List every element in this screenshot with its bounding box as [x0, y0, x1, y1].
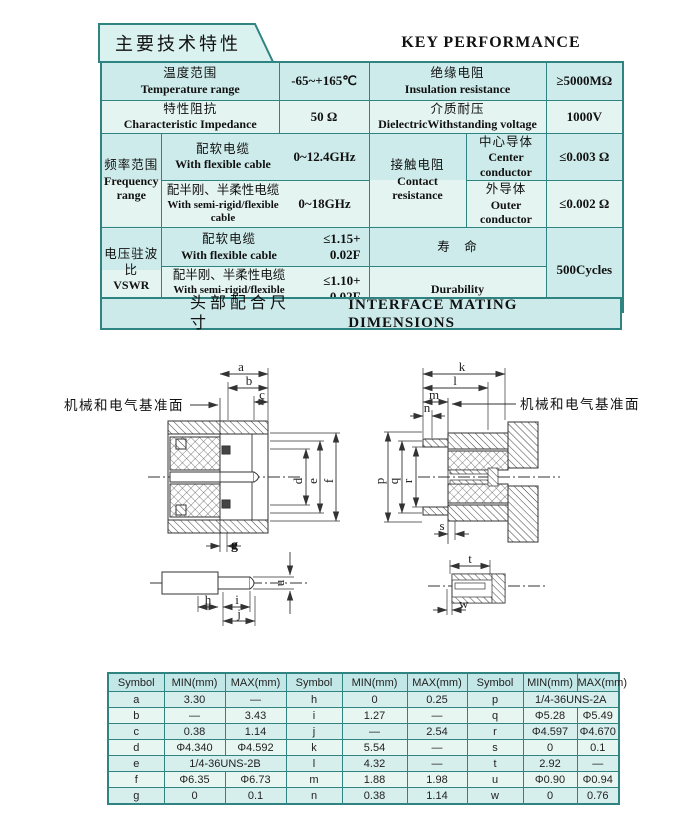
dim-label-j: j [236, 606, 241, 621]
dim-cell: 0 [342, 692, 407, 708]
impedance-en: Characteristic Impedance [104, 117, 277, 131]
dim-cell: 0 [523, 788, 577, 805]
temperature-en: Temperature range [104, 82, 277, 96]
vswr-semirigid-value-line1: ≤1.10+ [295, 273, 361, 289]
dim-label-r: r [400, 478, 415, 483]
dim-label-f: f [321, 478, 336, 483]
dim-cell: l [286, 756, 342, 772]
dim-cell: Φ0.94 [577, 772, 619, 788]
dim-cell: 0.25 [407, 692, 467, 708]
vswr-flexible-value-line2: 0.02F [295, 247, 361, 263]
dim-cell: Φ4.592 [225, 740, 286, 756]
dim-cell: n [286, 788, 342, 805]
dim-cell: k [286, 740, 342, 756]
ref-plane-label-left: 机械和电气基准面 [64, 397, 184, 413]
dim-cell: 0.1 [577, 740, 619, 756]
dim-table-header: MAX(mm) [225, 673, 286, 692]
center-conductor-en: Center conductor [469, 150, 544, 179]
dim-label-i: i [235, 592, 239, 607]
dim-label-c: c [259, 387, 265, 402]
dim-cell: 5.54 [342, 740, 407, 756]
dim-cell: 4.32 [342, 756, 407, 772]
dim-cell: w [467, 788, 523, 805]
dim-cell: Φ4.340 [164, 740, 225, 756]
key-performance-table: 温度范围 Temperature range -65~+165℃ 绝缘电阻 In… [100, 61, 624, 313]
dim-cell: 0 [164, 788, 225, 805]
dim-cell: Φ5.49 [577, 708, 619, 724]
dim-cell: 1.88 [342, 772, 407, 788]
temperature-value-cell: -65~+165℃ [279, 62, 369, 100]
frequency-label-cell: 频率范围 Frequency range [101, 133, 161, 228]
dim-cell: g [108, 788, 164, 805]
withstanding-en: DielectricWithstanding voltage [372, 117, 544, 131]
dim-cell: — [407, 708, 467, 724]
dim-cell: Φ5.28 [523, 708, 577, 724]
plug-drawing [148, 368, 340, 552]
insulation-cn: 绝缘电阻 [372, 66, 544, 82]
dim-cell: 3.30 [164, 692, 225, 708]
interface-drawings: 机械和电气基准面 a b c d e f g [52, 350, 652, 655]
vswr-semirigid-cn: 配半刚、半柔性电缆 [164, 268, 295, 284]
dim-table-row-g: g 0 0.1 n 0.38 1.14 w 0 0.76 [108, 788, 619, 805]
dim-table-header-row: Symbol MIN(mm) MAX(mm) Symbol MIN(mm) MA… [108, 673, 619, 692]
dim-cell: p [467, 692, 523, 708]
freq-semirigid-cn: 配半刚、半柔性电缆 [164, 183, 283, 199]
dim-table-row-c: c 0.38 1.14 j — 2.54 r Φ4.597 Φ4.670 [108, 724, 619, 740]
freq-semirigid-value: 0~18GHz [283, 196, 367, 212]
outer-conductor-value-cell: ≤0.002 Ω [546, 180, 623, 227]
dim-label-m: m [429, 387, 439, 402]
vswr-flexible-value-line1: ≤1.15+ [295, 231, 361, 247]
dim-cell: Φ0.90 [523, 772, 577, 788]
dim-label-g: g [231, 538, 238, 553]
frequency-en: Frequency range [104, 174, 159, 203]
dim-table-row-b: b — 3.43 i 1.27 — q Φ5.28 Φ5.49 [108, 708, 619, 724]
dim-cell: Φ4.670 [577, 724, 619, 740]
dim-cell: 1.27 [342, 708, 407, 724]
dim-cell: 1/4-36UNS-2A [523, 692, 619, 708]
durability-cn-cell: 寿 命 [369, 228, 546, 267]
dim-cell: 3.43 [225, 708, 286, 724]
dim-cell: — [342, 724, 407, 740]
impedance-label-cell: 特性阻抗 Characteristic Impedance [101, 100, 279, 133]
center-conductor-value-cell: ≤0.003 Ω [546, 133, 623, 180]
dim-cell: 0.1 [225, 788, 286, 805]
frequency-cn: 频率范围 [104, 158, 159, 174]
dim-cell: 1.14 [407, 788, 467, 805]
dim-table-row-a: a 3.30 — h 0 0.25 p 1/4-36UNS-2A [108, 692, 619, 708]
outer-conductor-label-cell: 外导体 Outer conductor [466, 180, 546, 227]
center-conductor-cn: 中心导体 [469, 135, 544, 151]
freq-semirigid-en: With semi-rigid/flexible cable [164, 199, 283, 225]
vswr-flexible-en: With flexible cable [164, 248, 295, 262]
jack-drawing [384, 368, 560, 544]
section-title-cn: 主要技术特性 [98, 30, 258, 56]
dim-cell: c [108, 724, 164, 740]
freq-semirigid-cell: 配半刚、半柔性电缆 With semi-rigid/flexible cable… [161, 180, 369, 227]
freq-flexible-cn: 配软电缆 [164, 142, 283, 158]
dim-cell: e [108, 756, 164, 772]
dim-label-u: u [272, 579, 287, 586]
dim-cell: i [286, 708, 342, 724]
mating-title-cn: 头部配合尺寸 [190, 294, 306, 334]
dim-label-t: t [468, 551, 472, 566]
dim-cell: — [407, 756, 467, 772]
impedance-cn: 特性阻抗 [104, 102, 277, 118]
dim-cell: 1.98 [407, 772, 467, 788]
dim-cell: u [467, 772, 523, 788]
dim-cell: 0 [523, 740, 577, 756]
dim-label-n: n [424, 400, 431, 415]
dim-table-header: Symbol [108, 673, 164, 692]
vswr-flexible-value: ≤1.15+ 0.02F [295, 231, 367, 264]
dim-cell: 2.92 [523, 756, 577, 772]
datasheet-page: 主要技术特性 KEY PERFORMANCE 温度范围 Temperature … [0, 0, 688, 836]
dim-cell: 1.14 [225, 724, 286, 740]
dim-table-header: Symbol [467, 673, 523, 692]
vswr-flexible-cell: 配软电缆 With flexible cable ≤1.15+ 0.02F [161, 228, 369, 267]
temperature-label-cell: 温度范围 Temperature range [101, 62, 279, 100]
dim-table-row-e: e 1/4-36UNS-2B l 4.32 — t 2.92 — [108, 756, 619, 772]
dim-cell: — [577, 756, 619, 772]
contact-label-cell: 接触电阻 Contact resistance [369, 133, 466, 228]
insulation-value-cell: ≥5000MΩ [546, 62, 623, 100]
insulation-label-cell: 绝缘电阻 Insulation resistance [369, 62, 546, 100]
dim-cell: f [108, 772, 164, 788]
freq-flexible-cell: 配软电缆 With flexible cable 0~12.4GHz [161, 133, 369, 180]
freq-flexible-en: With flexible cable [164, 157, 283, 171]
dim-cell: h [286, 692, 342, 708]
section-title-en: KEY PERFORMANCE [360, 34, 622, 52]
withstanding-value-cell: 1000V [546, 100, 623, 133]
withstanding-cn: 介质耐压 [372, 102, 544, 118]
dim-cell: m [286, 772, 342, 788]
dim-label-q: q [386, 477, 401, 484]
dim-label-e: e [305, 478, 320, 484]
dim-table-row-f: f Φ6.35 Φ6.73 m 1.88 1.98 u Φ0.90 Φ0.94 [108, 772, 619, 788]
contact-en: Contact resistance [372, 174, 464, 203]
dim-cell: Φ6.35 [164, 772, 225, 788]
dim-table-header: MAX(mm) [577, 673, 619, 692]
dim-cell: b [108, 708, 164, 724]
dim-label-w: w [459, 596, 469, 611]
dim-table-header: Symbol [286, 673, 342, 692]
contact-cn: 接触电阻 [372, 158, 464, 174]
socket-detail-drawing [428, 560, 545, 615]
dim-label-a: a [238, 359, 244, 374]
dimension-table: Symbol MIN(mm) MAX(mm) Symbol MIN(mm) MA… [107, 672, 620, 805]
temperature-cn: 温度范围 [104, 66, 277, 82]
dim-cell: Φ6.73 [225, 772, 286, 788]
dim-cell: q [467, 708, 523, 724]
dim-cell: — [164, 708, 225, 724]
ref-plane-label-right: 机械和电气基准面 [520, 396, 640, 412]
dim-cell: 1/4-36UNS-2B [164, 756, 286, 772]
dim-table-row-d: d Φ4.340 Φ4.592 k 5.54 — s 0 0.1 [108, 740, 619, 756]
dim-label-d: d [290, 477, 305, 484]
dim-cell: 2.54 [407, 724, 467, 740]
impedance-value-cell: 50 Ω [279, 100, 369, 133]
dim-table-header: MIN(mm) [164, 673, 225, 692]
dim-cell: j [286, 724, 342, 740]
dim-cell: d [108, 740, 164, 756]
durability-cn: 寿 命 [372, 240, 544, 256]
dim-label-s: s [439, 518, 444, 533]
outer-conductor-cn: 外导体 [469, 182, 544, 198]
dim-cell: r [467, 724, 523, 740]
dim-table-header: MIN(mm) [523, 673, 577, 692]
outer-conductor-en: Outer conductor [469, 198, 544, 227]
dim-cell: a [108, 692, 164, 708]
dim-table-header: MIN(mm) [342, 673, 407, 692]
mating-title-en: INTERFACE MATING DIMENSIONS [348, 296, 620, 332]
dim-cell: t [467, 756, 523, 772]
dim-cell: 0.38 [342, 788, 407, 805]
center-conductor-label-cell: 中心导体 Center conductor [466, 133, 546, 180]
dim-cell: — [225, 692, 286, 708]
dim-label-b: b [246, 373, 253, 388]
vswr-cn: 电压驻波比 [104, 247, 159, 278]
dim-cell: s [467, 740, 523, 756]
dim-label-h: h [205, 592, 212, 607]
dim-table-header: MAX(mm) [407, 673, 467, 692]
dim-cell: Φ4.597 [523, 724, 577, 740]
dim-cell: — [407, 740, 467, 756]
dim-label-l: l [453, 373, 457, 388]
freq-flexible-value: 0~12.4GHz [283, 149, 367, 165]
dim-cell: 0.76 [577, 788, 619, 805]
insulation-en: Insulation resistance [372, 82, 544, 96]
dim-label-k: k [459, 359, 466, 374]
withstanding-label-cell: 介质耐压 DielectricWithstanding voltage [369, 100, 546, 133]
pin-detail-drawing [150, 552, 310, 626]
dim-label-p: p [372, 478, 387, 485]
mating-section-bar: 头部配合尺寸 INTERFACE MATING DIMENSIONS [100, 297, 622, 330]
dim-cell: 0.38 [164, 724, 225, 740]
vswr-flexible-cn: 配软电缆 [164, 232, 295, 248]
vswr-en: VSWR [104, 278, 159, 292]
